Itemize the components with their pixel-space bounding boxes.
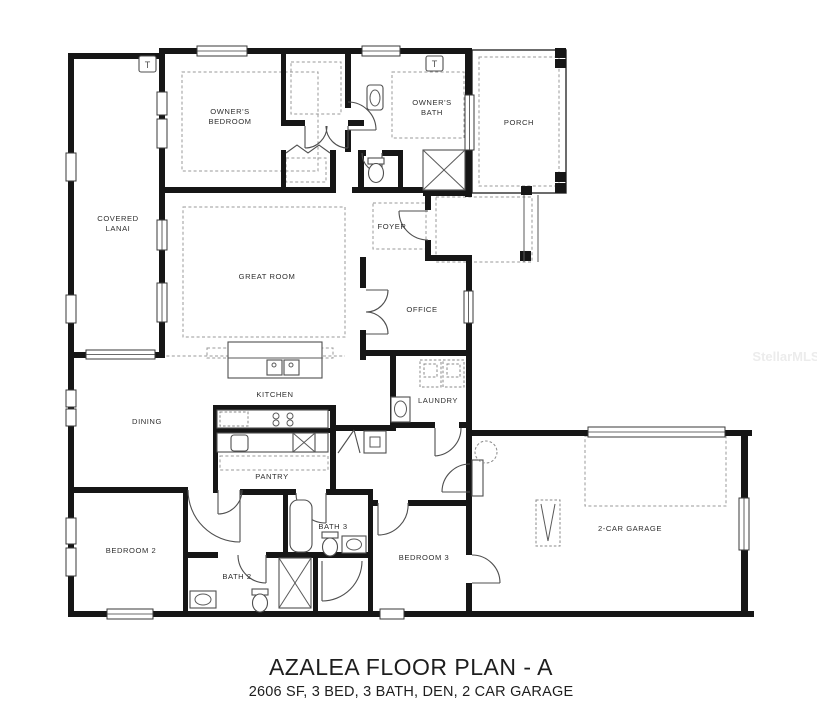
window (157, 92, 167, 115)
room-label-bedroom-2: BEDROOM 2 (106, 546, 157, 555)
room-label-covered-lanai-line2: LANAI (106, 224, 131, 233)
floor-plan-screenshot: T T (0, 0, 817, 720)
tub-icon (290, 500, 312, 552)
window (157, 119, 167, 148)
window (66, 548, 76, 576)
room-label-owners-bath-line1: OWNER'S (412, 98, 451, 107)
porch-post (555, 59, 566, 68)
closet2-shelving (286, 158, 326, 182)
room-label-pantry: PANTRY (255, 472, 288, 481)
garage-entry-door (442, 460, 483, 496)
room-label-owners-bath-line2: BATH (421, 108, 443, 117)
window (66, 390, 76, 407)
room-label-office: OFFICE (406, 305, 437, 314)
plan-subtitle: 2606 SF, 3 BED, 3 BATH, DEN, 2 CAR GARAG… (249, 684, 574, 700)
office-double-doors (366, 290, 388, 334)
island-sink (267, 360, 282, 375)
bedroom3-door (378, 503, 408, 535)
garage-step (472, 460, 483, 496)
bath2-fixtures (190, 558, 311, 612)
laundry-fixtures (391, 360, 464, 422)
room-label-foyer: FOYER (378, 222, 407, 231)
hall-linen-door (338, 430, 360, 453)
bedroom2-door (188, 490, 240, 542)
kitchen-counter (217, 410, 328, 428)
room-label-great-room: GREAT ROOM (239, 272, 296, 281)
interior-walls (68, 48, 472, 611)
garage-side-door (472, 555, 500, 583)
window (66, 153, 76, 181)
room-label-kitchen: KITCHEN (256, 390, 293, 399)
room-label-dining: DINING (132, 417, 162, 426)
t-marker: T (432, 59, 438, 69)
pantry-shelving (220, 456, 328, 470)
pantry-counter (217, 433, 328, 452)
room-label-bath-2: BATH 2 (222, 572, 251, 581)
room-label-owners-bedroom-line2: BEDROOM (208, 117, 251, 126)
porch-post (555, 172, 566, 182)
owners-bath-fixtures: T (367, 56, 465, 190)
porch-post (521, 186, 532, 195)
room-label-bedroom-3: BEDROOM 3 (399, 553, 450, 562)
toilet-icon (322, 532, 338, 556)
plan-title: AZALEA FLOOR PLAN - A (269, 654, 553, 680)
toilet-icon (252, 589, 268, 612)
window (380, 609, 404, 619)
porch-post (555, 48, 566, 58)
window (66, 295, 76, 323)
ceiling-trays (80, 62, 726, 506)
toilet-icon (368, 158, 384, 183)
title-block: AZALEA FLOOR PLAN - A 2606 SF, 3 BED, 3 … (249, 654, 574, 700)
attic-ladder-icon (536, 500, 560, 546)
room-label-porch: PORCH (504, 118, 534, 127)
hall-cabinet (364, 431, 386, 453)
floor-plan-drawing: T T (0, 0, 817, 720)
laundry-door (435, 428, 461, 456)
windows (66, 46, 749, 619)
room-label-owners-bedroom-line1: OWNER'S (210, 107, 249, 116)
pantry-door (218, 490, 242, 514)
room-label-covered-lanai-line1: COVERED (97, 214, 138, 223)
window (66, 518, 76, 544)
room-label-garage: 2-CAR GARAGE (598, 524, 662, 533)
walkin-closet-shelving (291, 62, 341, 114)
room-label-bath-3: BATH 3 (318, 522, 347, 531)
island-sink (284, 360, 299, 375)
owners-suite-double-doors (305, 126, 348, 148)
prep-sink (231, 435, 248, 451)
closet2-bifold (286, 145, 330, 153)
entry-walk (436, 195, 538, 262)
t-marker: T (145, 60, 151, 70)
window (66, 409, 76, 426)
watermark-text: StellarMLS (752, 349, 817, 364)
room-label-laundry: LAUNDRY (418, 396, 458, 405)
garage-ceiling (585, 436, 726, 506)
kitchen-island (228, 342, 322, 378)
porch-post (555, 183, 566, 193)
bedroom3-closet-door (322, 561, 362, 601)
entry-post (520, 251, 531, 261)
